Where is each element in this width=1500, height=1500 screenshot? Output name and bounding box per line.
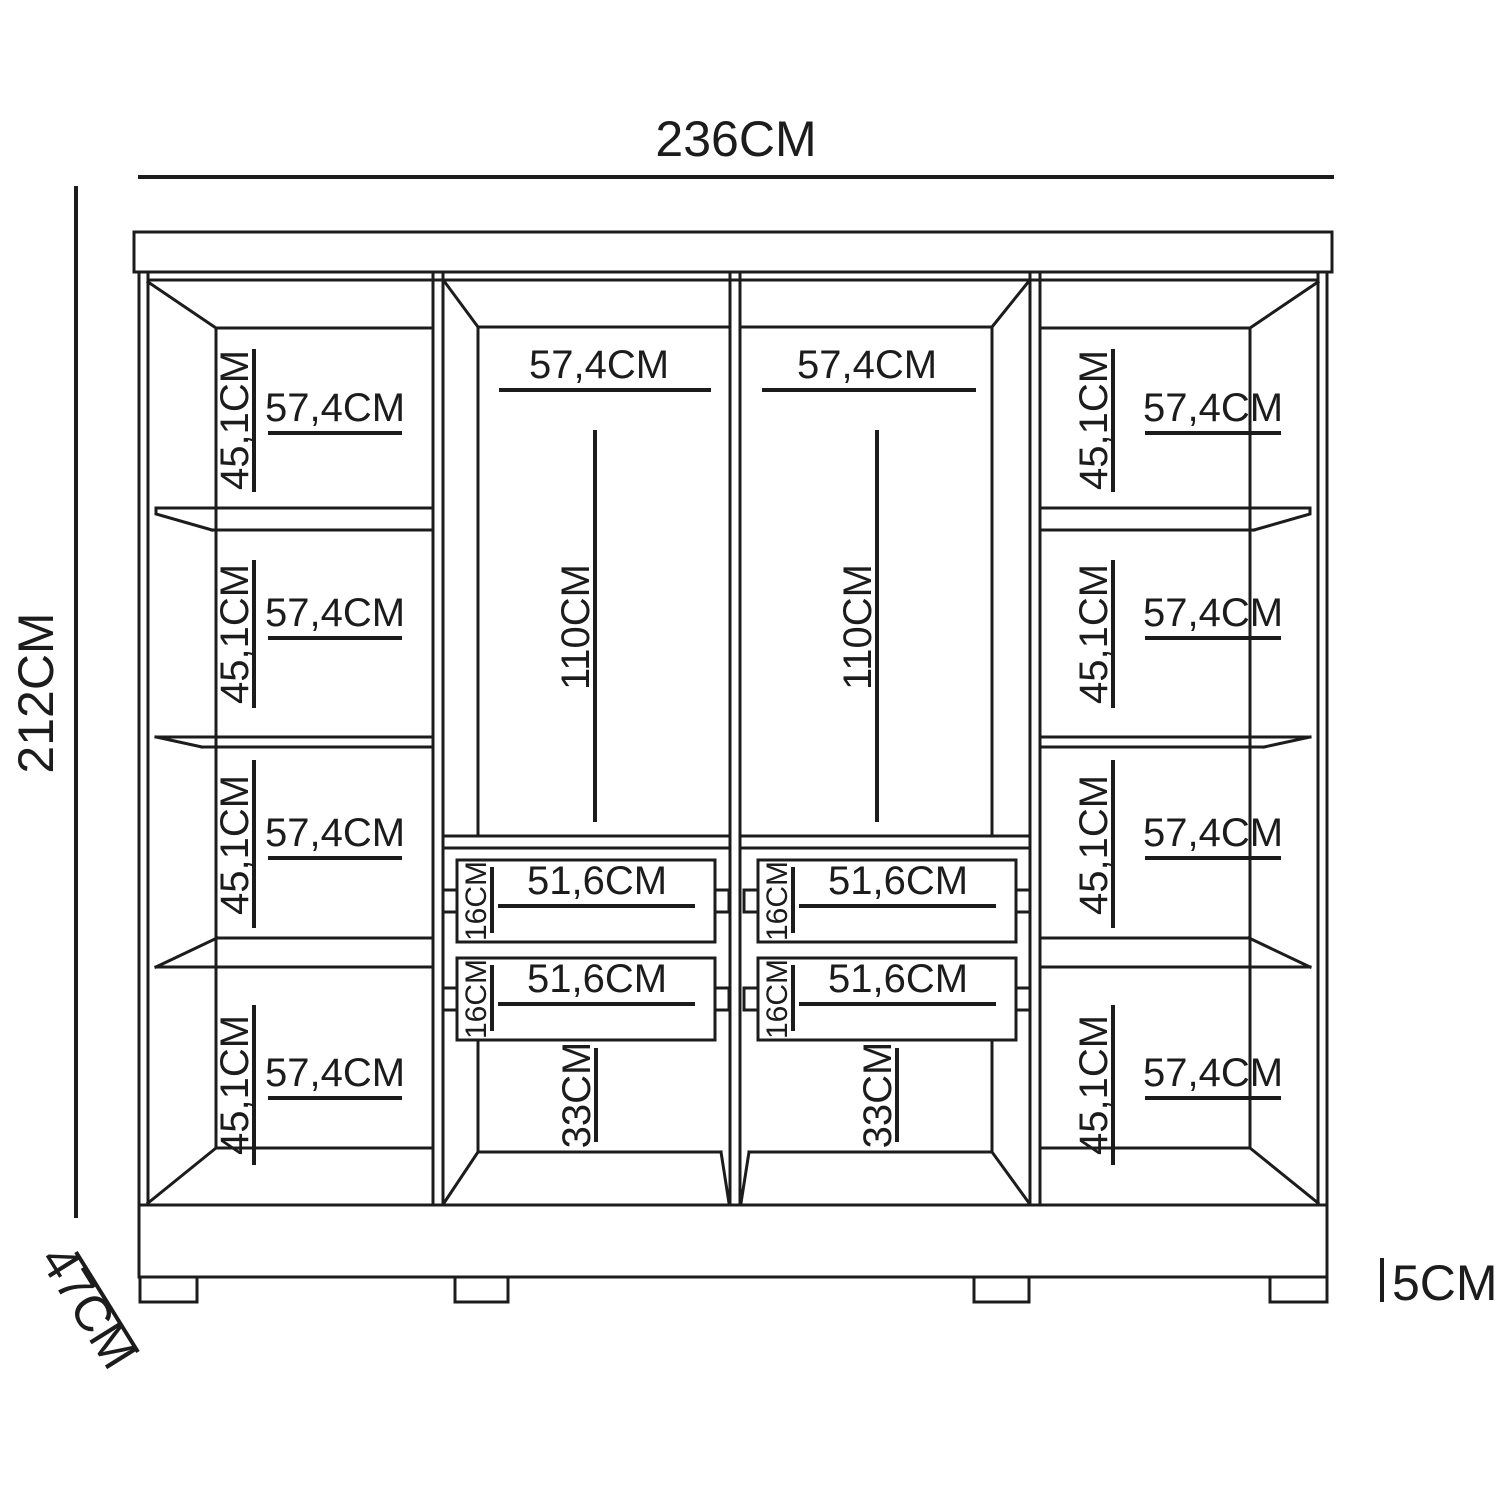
hanging-height-dim-lines [595, 430, 877, 822]
feet-height-label: 5CM [1392, 1255, 1498, 1311]
foot-3 [974, 1277, 1029, 1302]
depth-label: 47CM [29, 1236, 147, 1379]
cubby-width-label-left-1: 57,4CM [265, 386, 405, 430]
cubby-width-label-right-1: 57,4CM [1143, 386, 1283, 430]
drawer-slide-tab [1016, 988, 1030, 1010]
cubby-width-label-left-3: 57,4CM [265, 811, 405, 855]
drawer-height-label-right-2: 16CM [761, 959, 794, 1039]
hanging-width-label-right: 57,4CM [797, 343, 937, 387]
drawer-slide-tab [1016, 890, 1030, 912]
cubby-width-label-left-4: 57,4CM [265, 1051, 405, 1095]
cubby-height-label-left-3: 45,1CM [213, 775, 257, 915]
cubby-height-label-right-3: 45,1CM [1072, 775, 1116, 915]
cubby-height-label-left-2: 45,1CM [213, 564, 257, 704]
foot-4 [1270, 1277, 1327, 1302]
left-shelf-2 [156, 737, 433, 747]
cubby-height-label-left-4: 45,1CM [213, 1015, 257, 1155]
drawer-slide-tab [715, 890, 729, 912]
base-opening-dim-lines [596, 1048, 897, 1142]
right-shelf-2 [1040, 737, 1310, 747]
base-opening-label-right: 33CM [856, 1042, 900, 1149]
cubby-height-label-right-2: 45,1CM [1072, 564, 1116, 704]
cubby-width-underlines-left [268, 433, 402, 1098]
left-shelf-3 [156, 938, 433, 967]
base-opening-label-left: 33CM [555, 1042, 599, 1149]
drawer-height-label-right-1: 16CM [761, 861, 794, 941]
left-shelf-1 [156, 508, 433, 530]
top-panel [134, 232, 1332, 272]
drawer-slide-tab [744, 988, 758, 1010]
drawer-width-label-right-2: 51,6CM [828, 957, 968, 1001]
drawer-height-label-left-2: 16CM [460, 959, 493, 1039]
total-height-label: 212CM [8, 612, 64, 773]
drawer-slide-tab [443, 988, 457, 1010]
drawer-slide-tab [715, 988, 729, 1010]
hanging-height-label-left: 110CM [554, 564, 598, 690]
drawer-width-label-left-2: 51,6CM [527, 957, 667, 1001]
cubby-width-label-right-3: 57,4CM [1143, 811, 1283, 855]
hanging-height-label-right: 110CM [836, 564, 880, 690]
technical-drawing-page: 236CM 212CM 47CM 5CM 45,1CM 45,1CM 45,1C… [0, 0, 1500, 1500]
cubby-height-label-left-1: 45,1CM [213, 350, 257, 490]
wardrobe-dimension-diagram: 236CM 212CM 47CM 5CM 45,1CM 45,1CM 45,1C… [0, 0, 1500, 1500]
cubby-width-label-right-4: 57,4CM [1143, 1051, 1283, 1095]
vertical-dividers [433, 272, 1040, 1205]
right-shelf-1 [1040, 508, 1310, 530]
foot-1 [140, 1277, 197, 1302]
drawer-slide-tab [443, 890, 457, 912]
drawer-slide-tab [744, 890, 758, 912]
cubby-height-label-right-1: 45,1CM [1072, 350, 1116, 490]
hanging-width-label-left: 57,4CM [529, 343, 669, 387]
drawer-width-label-right-1: 51,6CM [828, 859, 968, 903]
foot-2 [455, 1277, 508, 1302]
cubby-width-label-left-2: 57,4CM [265, 591, 405, 635]
total-width-label: 236CM [655, 111, 816, 167]
drawer-height-label-left-1: 16CM [460, 861, 493, 941]
cubby-height-label-right-4: 45,1CM [1072, 1015, 1116, 1155]
cubby-width-underlines-right [1145, 433, 1281, 1098]
cubby-width-label-right-2: 57,4CM [1143, 591, 1283, 635]
right-shelf-3 [1040, 938, 1310, 967]
drawer-width-label-left-1: 51,6CM [527, 859, 667, 903]
